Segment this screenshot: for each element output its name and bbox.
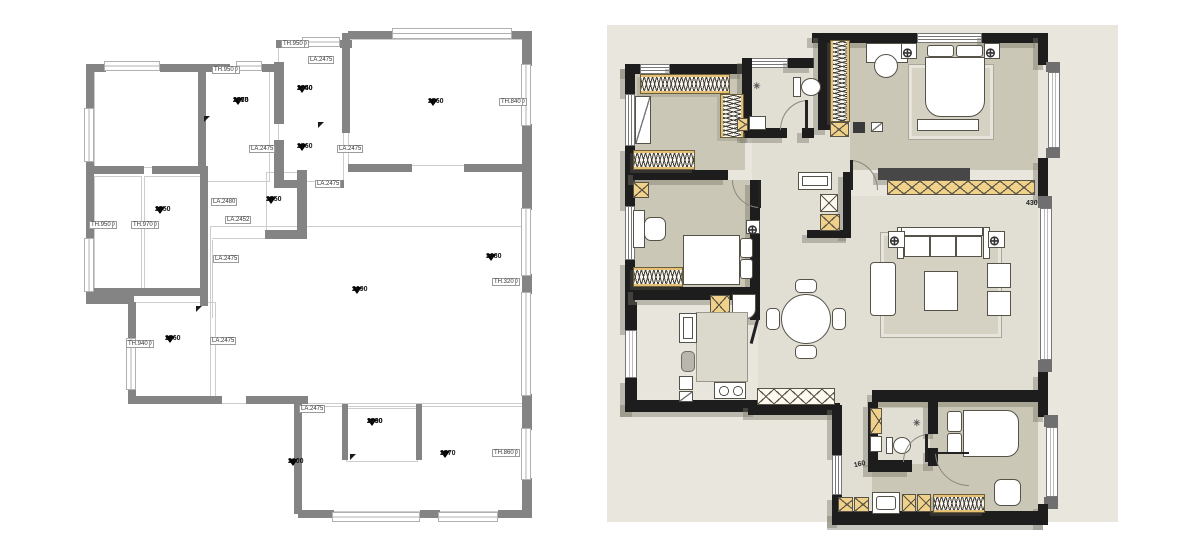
wall [832, 511, 1048, 525]
wall [1038, 158, 1048, 198]
dining-table [781, 294, 831, 344]
washer-drum [876, 496, 896, 510]
toilet-tank [886, 437, 893, 454]
wardrobe [640, 74, 730, 94]
dining-chair [832, 308, 846, 330]
bay-window-cap [1044, 415, 1058, 427]
kitchen-sink [679, 313, 697, 343]
nightstand [853, 122, 865, 133]
desk-chair [874, 54, 898, 78]
sofa-back [901, 227, 983, 236]
bay-window-cap [1046, 62, 1060, 72]
bed [963, 410, 1019, 457]
cabinet [830, 122, 849, 137]
entry-console [798, 172, 832, 190]
side-table [987, 263, 1011, 288]
ceiling-light-icon [984, 43, 1000, 59]
bay-window [1048, 72, 1060, 148]
bay-window-cap [1046, 148, 1060, 158]
door-leaf [758, 180, 761, 208]
bathroom-sink [870, 436, 882, 452]
double-bed [925, 57, 985, 117]
shoe-cabinet [757, 388, 835, 405]
ceiling-light-icon [746, 220, 760, 234]
stool [871, 122, 883, 132]
door-leaf [850, 160, 853, 190]
wall [633, 170, 728, 180]
window [917, 33, 982, 43]
base-cabinet [679, 376, 693, 390]
shower-icon [753, 82, 761, 91]
toilet-tank [793, 77, 801, 97]
wall [872, 390, 1038, 402]
stove [714, 382, 746, 399]
shower-icon [913, 419, 921, 428]
wall [625, 64, 635, 94]
window [748, 58, 788, 68]
balcony-window [1040, 208, 1052, 360]
wall [982, 33, 1040, 43]
ceiling-light-icon [901, 43, 917, 59]
wall [807, 230, 851, 238]
cabinet [902, 494, 916, 512]
side-table [987, 291, 1011, 316]
washing-machine [872, 492, 900, 514]
wardrobe [720, 94, 744, 138]
bay-window-cap [1038, 196, 1052, 208]
cabinet [820, 214, 840, 231]
bathroom-cabinet [870, 408, 882, 434]
bed [683, 235, 740, 285]
pillow [956, 45, 983, 57]
dimension-label: 430 [1026, 200, 1038, 208]
wall [928, 402, 938, 434]
cabinet [633, 182, 649, 198]
wall [1038, 372, 1048, 417]
pillow [927, 45, 954, 57]
dining-chair [766, 308, 780, 330]
bed-bench [917, 119, 979, 131]
sink-basin [683, 317, 693, 339]
kitchen-island [696, 312, 748, 382]
water-heater [681, 351, 695, 372]
pillow [947, 433, 962, 454]
door-leaf [935, 452, 969, 454]
coffee-table [924, 271, 958, 311]
corner-cabinet [679, 391, 693, 402]
cabinet [854, 497, 869, 512]
sofa-seat [904, 236, 930, 257]
sofa-seat [956, 236, 982, 257]
pillow [947, 411, 962, 432]
toilet-bowl [801, 78, 821, 96]
right-floor-plan: 430 160 [0, 0, 1200, 550]
mirror-cabinet [635, 96, 651, 144]
window [832, 455, 842, 495]
plant-icon [988, 231, 1005, 248]
wall [878, 168, 970, 180]
wall [818, 33, 830, 130]
bay-window-cap [1038, 360, 1052, 372]
chair [644, 217, 666, 241]
wardrobe [633, 150, 695, 170]
wardrobe [933, 494, 985, 513]
cabinet [838, 497, 853, 512]
wall [1038, 33, 1048, 65]
door-leaf [805, 100, 808, 130]
pillow [740, 259, 753, 279]
wardrobe-run [887, 180, 1035, 195]
window [640, 64, 670, 74]
window [625, 94, 635, 146]
cabinet [917, 494, 931, 512]
console-top [802, 176, 828, 186]
armchair [994, 479, 1021, 506]
bathroom-cabinet [737, 118, 748, 131]
wardrobe [830, 40, 850, 122]
wall [670, 64, 745, 74]
pillow [740, 238, 753, 258]
chaise-lounge [870, 262, 896, 316]
wall [788, 58, 814, 68]
wall [832, 405, 842, 455]
dining-chair [795, 345, 817, 359]
bay-window [1046, 427, 1058, 497]
plant-icon [888, 231, 905, 248]
wardrobe [633, 267, 683, 287]
wall [625, 302, 637, 330]
door-leaf [925, 434, 928, 462]
sofa-seat [930, 236, 956, 257]
cabinet [820, 194, 838, 212]
window [625, 330, 637, 378]
vanity-sink [749, 116, 766, 130]
floor-plan-canvas: 27352470 27402450 2760 2760 2750 2750 26… [0, 0, 1200, 550]
dining-chair [795, 279, 817, 293]
